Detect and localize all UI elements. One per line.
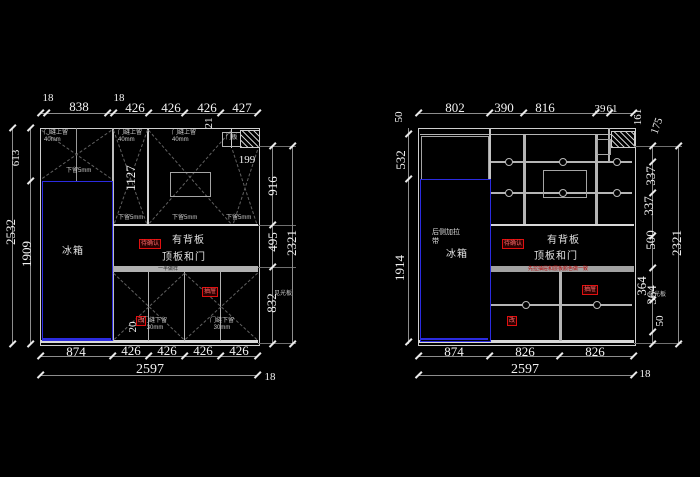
right-bottom-shelf-line <box>491 304 632 306</box>
left-red-tag-2: 抽屉 <box>202 287 218 297</box>
door-gap-note: 门缝上留40mm <box>172 130 196 144</box>
left-divider-strip <box>113 266 258 272</box>
bottom-leave-note: 下留5mm <box>172 215 197 222</box>
dim-tick <box>405 338 412 345</box>
bottom-leave-note: 下留5mm <box>66 168 91 175</box>
dim-2532: 2532 <box>2 204 18 260</box>
right-small-panel <box>597 139 611 155</box>
bottom-leave-note: 下留5mm <box>226 215 251 222</box>
light-board-note: 见光板 <box>648 292 666 299</box>
dim-61: 61 <box>604 104 620 115</box>
dim-tick <box>9 340 16 347</box>
right-drawer-front <box>543 170 587 198</box>
right-band-top-line <box>491 224 634 226</box>
dim-1914: 1914 <box>391 240 407 296</box>
dim-18-bottom: 18 <box>636 369 654 380</box>
left-red-tag-3: 待确认 <box>139 239 161 249</box>
dim-874: 874 <box>434 345 474 358</box>
left-center-recess <box>170 172 211 197</box>
left-topboard-label: 顶板和门 <box>162 252 206 263</box>
door-gap-note: 门缝上留40mm <box>44 130 68 144</box>
dim-426: 426 <box>157 101 185 114</box>
shelf-pin <box>613 158 621 166</box>
dim-613: 613 <box>8 130 24 186</box>
shelf-pin <box>559 158 567 166</box>
dim-426: 426 <box>153 344 181 357</box>
right-topboard-label: 顶板和门 <box>534 251 578 262</box>
dim-1909: 1909 <box>18 226 34 282</box>
shelf-pin <box>505 158 513 166</box>
shelf-pin <box>522 301 530 309</box>
dim-916: 916 <box>264 158 280 214</box>
left-upper-divider-1 <box>147 128 149 225</box>
dim-426: 426 <box>225 344 253 357</box>
left-band-top-line <box>113 224 258 226</box>
left-divider-strip-note: 一半做样 <box>158 266 178 272</box>
right-fridge-top-section <box>421 136 489 180</box>
dim-495: 495 <box>264 214 280 270</box>
bottom-leave-note: 下留5mm <box>118 215 143 222</box>
dim-426: 426 <box>121 101 149 114</box>
right-bottom-center-divider <box>559 272 562 341</box>
right-red-tag-1: 改 <box>507 316 517 326</box>
shelf-pin <box>613 189 621 197</box>
left-fridge-compartment <box>42 181 113 341</box>
shelf-pin <box>505 189 513 197</box>
dim-tick <box>254 352 261 359</box>
left-fridge-label: 冰箱 <box>62 246 84 257</box>
dim-18-bottom: 18 <box>261 372 279 383</box>
dim-874: 874 <box>56 345 96 358</box>
dim-426: 426 <box>189 344 217 357</box>
door-gap-note: 门缝上留40mm <box>118 130 142 144</box>
left-fridge-bottom-line <box>42 338 111 340</box>
left-bottom-divider-2 <box>184 272 185 341</box>
shelf-pin <box>593 301 601 309</box>
left-hatch-panel <box>240 130 260 148</box>
right-fridge-compartment <box>420 179 491 342</box>
right-left-dim-line <box>408 128 409 344</box>
dim-1127: 1127 <box>122 150 138 206</box>
dim-50: 50 <box>652 293 668 349</box>
dim-2321: 2321 <box>283 215 299 271</box>
dim-21: 21 <box>201 95 217 151</box>
door-bottom-gap-note: 门缝下留30mm <box>210 318 234 332</box>
light-board-note: 见光板 <box>274 291 292 298</box>
dim-390: 390 <box>487 101 521 114</box>
dim-832: 832 <box>263 275 279 331</box>
left-door-panel-box: 门板 <box>222 132 241 147</box>
dim-802: 802 <box>435 101 475 114</box>
right-red-tag-3: 待确认 <box>502 239 524 249</box>
right-top-inner-line <box>420 134 632 135</box>
right-fridge-bottom-line <box>421 338 488 340</box>
dim-816: 816 <box>528 101 562 114</box>
dim-532: 532 <box>392 132 408 188</box>
door-bottom-gap-note: 门缝下留30mm <box>143 318 167 332</box>
dim-838: 838 <box>62 100 96 113</box>
left-backpanel-label: 有背板 <box>172 235 205 246</box>
dim-2321: 2321 <box>668 215 684 271</box>
right-red-tag-2: 抽屉 <box>582 285 598 295</box>
dim-427: 427 <box>228 101 256 114</box>
dim-tick <box>27 340 34 347</box>
right-fridge-label: 冰箱 <box>446 249 468 260</box>
right-shelf-divider-1 <box>523 134 526 225</box>
cad-canvas: 冰箱 门板 待确认 有背板 顶板和门 一半做样 改 抽屉 门缝上留40m <box>0 0 700 477</box>
right-divider-strip-note: 先拉抽屉和层板颜色做一致 <box>528 266 588 272</box>
dim-826: 826 <box>508 345 542 358</box>
dim-199: 199 <box>232 155 262 166</box>
dim-426: 426 <box>117 344 145 357</box>
dim-tick <box>630 352 637 359</box>
dim-18: 18 <box>40 93 56 104</box>
dim-2597: 2597 <box>120 363 180 376</box>
dim-2597: 2597 <box>495 363 555 376</box>
dim-826: 826 <box>578 345 612 358</box>
rear-strap-note: 后侧加拉带 <box>432 228 460 246</box>
right-backpanel-label: 有背板 <box>547 235 580 246</box>
